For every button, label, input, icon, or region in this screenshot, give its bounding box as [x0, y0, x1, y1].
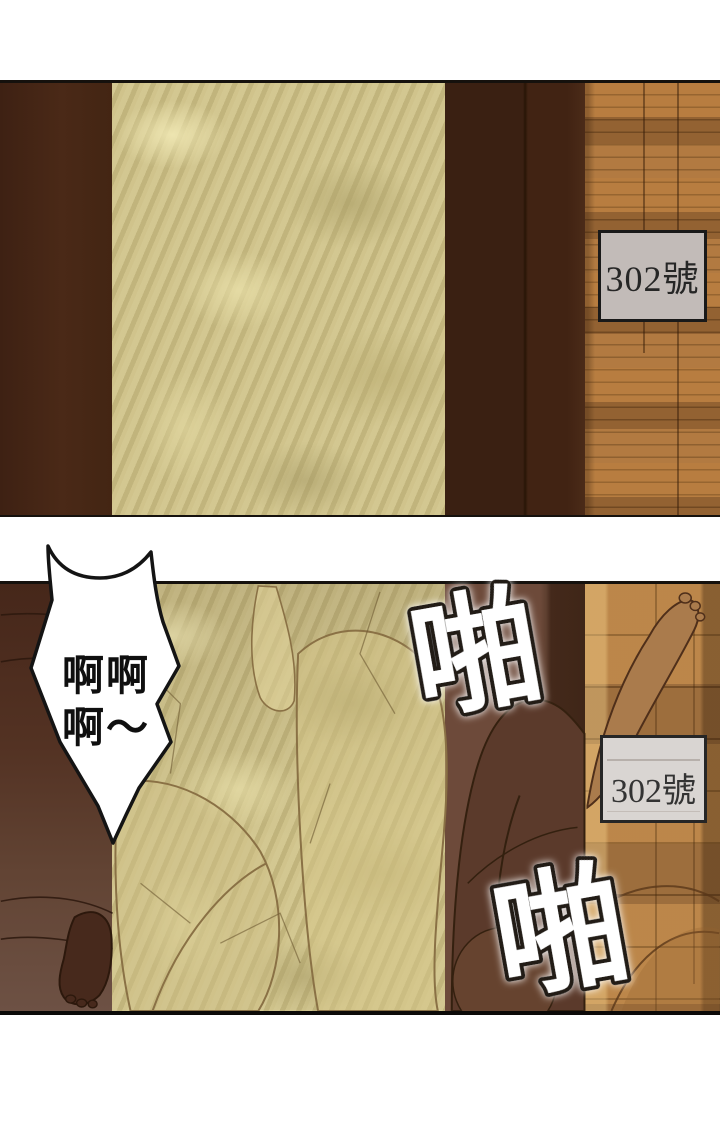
- room-number-sign: 302號: [598, 230, 707, 322]
- sign-groove: [607, 759, 700, 761]
- panel-top: 302號: [0, 80, 720, 517]
- room-number-label: 302號: [611, 763, 696, 812]
- panel-bottom: 302號: [0, 581, 720, 1015]
- room-number-label: 302號: [605, 250, 699, 302]
- left-frame-lines: [1, 614, 113, 949]
- door-left-frame: [0, 83, 112, 515]
- door-right-frame: [445, 83, 585, 515]
- door-silhouette-figure: [452, 700, 585, 1011]
- comic-page: 302號: [0, 0, 720, 1139]
- sign-groove: [607, 811, 700, 812]
- glass-figures: [115, 586, 446, 1011]
- frosted-glass-panel: [112, 83, 445, 515]
- foot-silhouette: [60, 912, 112, 1004]
- room-number-sign: 302號: [600, 735, 707, 823]
- floor-body-outlines: [599, 886, 719, 1011]
